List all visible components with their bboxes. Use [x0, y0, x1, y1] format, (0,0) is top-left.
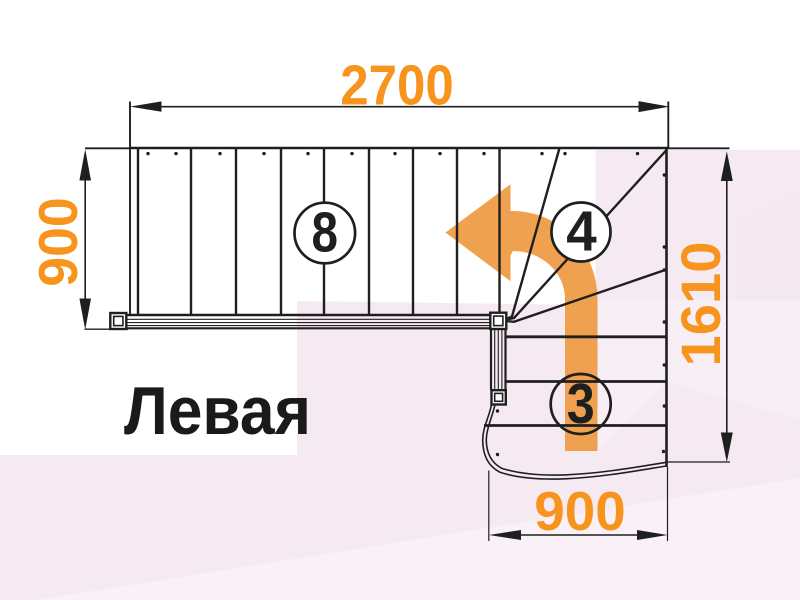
svg-text:1610: 1610	[669, 242, 732, 367]
svg-text:2700: 2700	[340, 54, 454, 117]
svg-text:Левая: Левая	[124, 373, 311, 449]
svg-text:8: 8	[312, 201, 339, 264]
svg-text:4: 4	[566, 200, 597, 263]
svg-text:900: 900	[534, 481, 626, 542]
svg-text:3: 3	[567, 372, 595, 435]
svg-text:900: 900	[28, 197, 89, 287]
